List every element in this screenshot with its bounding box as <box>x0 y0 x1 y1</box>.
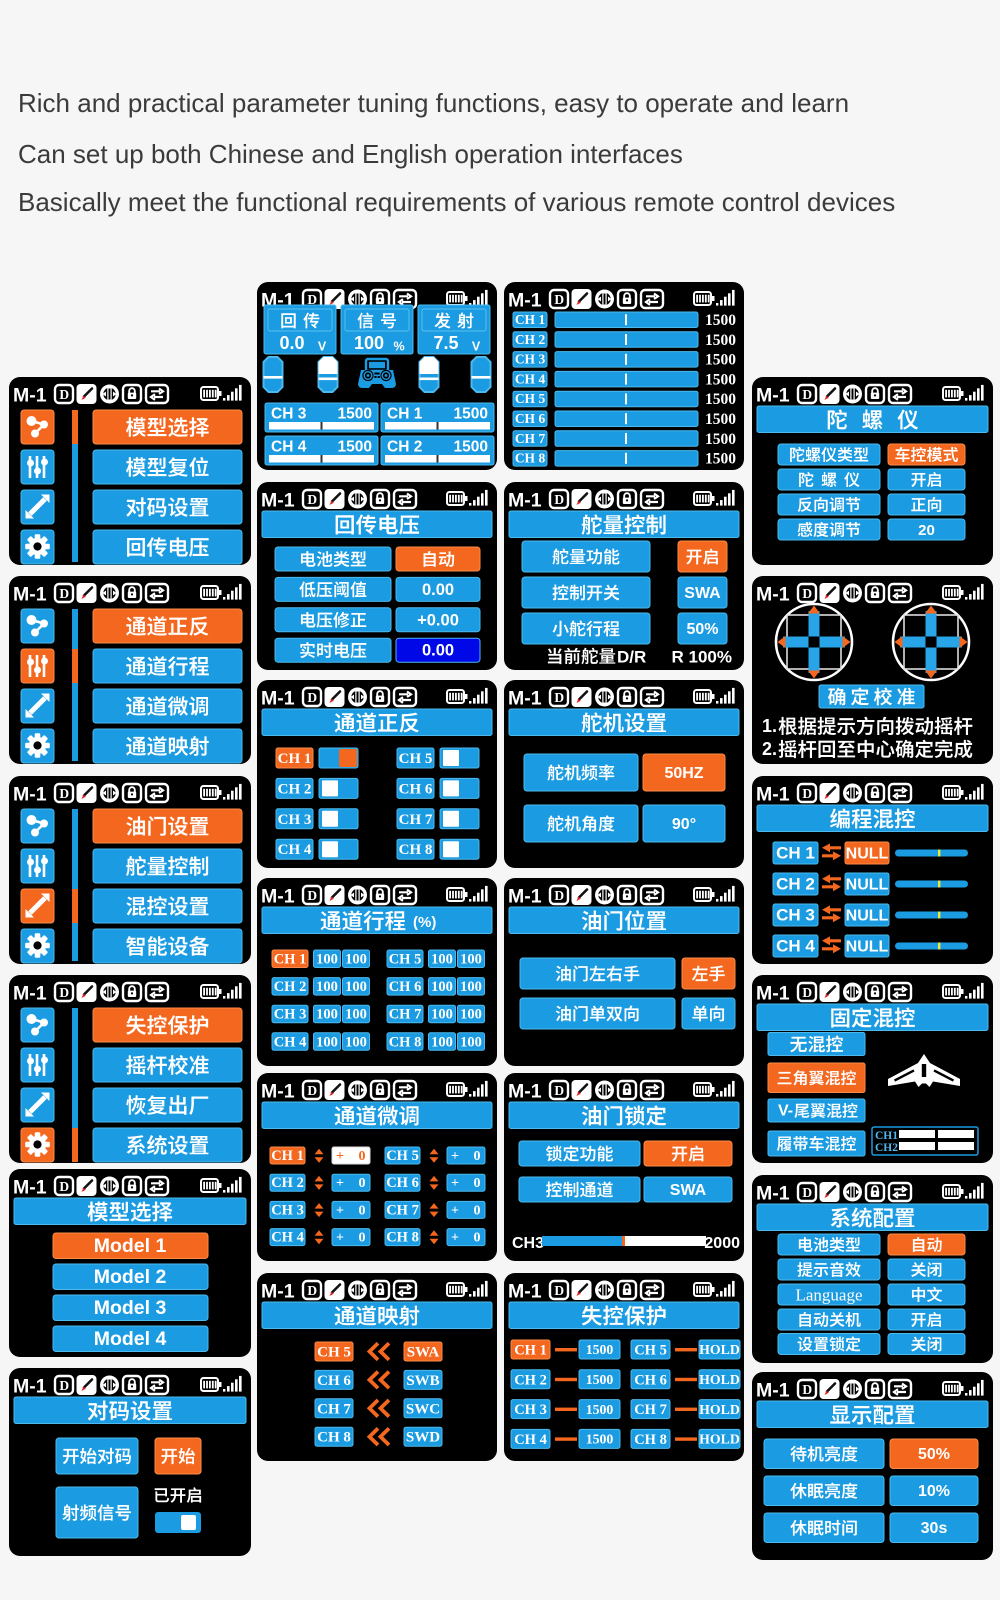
svg-text:0.00: 0.00 <box>422 581 454 599</box>
svg-text:CH 8: CH 8 <box>634 1432 667 1448</box>
svg-text:CH 6: CH 6 <box>386 1175 419 1191</box>
svg-text:CH 4: CH 4 <box>274 1034 307 1050</box>
svg-text:+: + <box>336 1176 344 1191</box>
svg-text:NULL: NULL <box>846 939 889 956</box>
svg-text:CH 6: CH 6 <box>317 1373 351 1389</box>
svg-text:100: 100 <box>460 1034 482 1050</box>
svg-text:+0.00: +0.00 <box>417 611 459 629</box>
svg-text:SWA: SWA <box>684 585 721 602</box>
svg-text:1500: 1500 <box>586 1432 614 1447</box>
svg-text:1500: 1500 <box>705 431 736 448</box>
svg-text:Model 2: Model 2 <box>94 1266 167 1288</box>
svg-text:100: 100 <box>316 979 338 995</box>
svg-text:V: V <box>318 340 327 354</box>
svg-text:CH 3: CH 3 <box>271 1202 304 1218</box>
svg-text:CH 6: CH 6 <box>634 1372 667 1388</box>
svg-text:100: 100 <box>460 979 482 995</box>
svg-text:CH 1: CH 1 <box>274 952 307 968</box>
svg-text:1.: 1. <box>762 716 777 736</box>
svg-text:CH 1: CH 1 <box>776 844 815 863</box>
svg-text:NULL: NULL <box>846 908 889 925</box>
svg-text:100: 100 <box>431 1034 453 1050</box>
svg-text:CH 2: CH 2 <box>271 1175 304 1191</box>
svg-text:CH 4: CH 4 <box>271 439 307 456</box>
svg-text:(%): (%) <box>413 914 436 931</box>
svg-text:50HZ: 50HZ <box>664 765 703 782</box>
svg-text:CH 7: CH 7 <box>515 431 546 446</box>
svg-text:CH 1: CH 1 <box>514 1343 547 1359</box>
svg-text:CH 5: CH 5 <box>317 1345 351 1361</box>
svg-text:CH 4: CH 4 <box>514 1432 547 1448</box>
svg-text:CH2: CH2 <box>875 1142 898 1154</box>
svg-text:100: 100 <box>460 1007 482 1023</box>
svg-text:100: 100 <box>345 979 367 995</box>
svg-text:0: 0 <box>359 1149 366 1164</box>
svg-text:Language: Language <box>795 1286 862 1305</box>
svg-text:+: + <box>451 1231 459 1246</box>
svg-text:R 100%: R 100% <box>672 648 732 667</box>
svg-text:CH 3: CH 3 <box>278 812 312 828</box>
svg-text:100: 100 <box>431 1007 453 1023</box>
svg-text:Model 3: Model 3 <box>94 1297 167 1319</box>
svg-text:0: 0 <box>359 1176 366 1191</box>
svg-text:100: 100 <box>316 1007 338 1023</box>
svg-text:CH 4: CH 4 <box>776 937 815 956</box>
svg-text:CH1: CH1 <box>875 1130 898 1142</box>
svg-text:100: 100 <box>354 333 384 353</box>
svg-text:CH 2: CH 2 <box>274 979 307 995</box>
svg-text:CH 5: CH 5 <box>634 1343 667 1359</box>
svg-text:V-: V- <box>778 1103 793 1120</box>
svg-text:CH 5: CH 5 <box>389 952 422 968</box>
svg-text:Model 4: Model 4 <box>94 1328 167 1350</box>
svg-text:2000: 2000 <box>704 1235 740 1252</box>
svg-text:100: 100 <box>431 979 453 995</box>
svg-text:+: + <box>336 1231 344 1246</box>
svg-text:0: 0 <box>474 1203 481 1218</box>
svg-text:SWB: SWB <box>406 1373 439 1389</box>
svg-text:7.5: 7.5 <box>433 333 458 353</box>
svg-text:30s: 30s <box>921 1520 948 1537</box>
svg-text:CH 3: CH 3 <box>271 406 307 423</box>
svg-text:CH 4: CH 4 <box>271 1230 304 1246</box>
svg-text:1500: 1500 <box>705 371 736 388</box>
svg-text:SWD: SWD <box>406 1430 440 1446</box>
svg-text:HOLD: HOLD <box>699 1402 740 1417</box>
svg-text:10%: 10% <box>918 1483 950 1500</box>
svg-text:CH 1: CH 1 <box>278 751 312 767</box>
svg-text:0.00: 0.00 <box>422 642 454 660</box>
svg-text:1500: 1500 <box>586 1402 614 1417</box>
svg-text:+: + <box>451 1149 459 1164</box>
svg-text:CH 7: CH 7 <box>399 812 433 828</box>
svg-text:100: 100 <box>431 952 453 968</box>
svg-text:%: % <box>393 340 404 354</box>
svg-text:1500: 1500 <box>705 312 736 329</box>
svg-text:2.: 2. <box>762 739 777 759</box>
svg-text:100: 100 <box>316 952 338 968</box>
svg-text:CH 8: CH 8 <box>317 1430 351 1446</box>
svg-text:0: 0 <box>474 1176 481 1191</box>
svg-text:0: 0 <box>359 1231 366 1246</box>
svg-text:1500: 1500 <box>586 1342 614 1357</box>
svg-text:CH 5: CH 5 <box>399 751 433 767</box>
svg-text:CH 8: CH 8 <box>399 842 433 858</box>
svg-text:CH 3: CH 3 <box>515 352 546 367</box>
svg-text:CH 2: CH 2 <box>514 1372 547 1388</box>
svg-text:1500: 1500 <box>454 439 488 456</box>
svg-text:1500: 1500 <box>338 439 372 456</box>
svg-text:D/R: D/R <box>617 648 646 667</box>
svg-text:NULL: NULL <box>846 877 889 894</box>
svg-text:SWA: SWA <box>407 1345 440 1361</box>
svg-text:SWA: SWA <box>670 1182 707 1199</box>
svg-text:CH 4: CH 4 <box>515 371 546 386</box>
svg-text:0.0: 0.0 <box>279 333 304 353</box>
svg-text:0: 0 <box>359 1203 366 1218</box>
svg-text:Can set up both Chinese and En: Can set up both Chinese and English oper… <box>18 139 683 169</box>
svg-text:HOLD: HOLD <box>699 1372 740 1387</box>
svg-text:CH 1: CH 1 <box>271 1148 304 1164</box>
svg-text:1500: 1500 <box>338 406 372 423</box>
svg-text:CH3: CH3 <box>512 1235 544 1252</box>
svg-text:HOLD: HOLD <box>699 1432 740 1447</box>
svg-text:CH 4: CH 4 <box>278 842 312 858</box>
svg-text:CH 7: CH 7 <box>386 1202 419 1218</box>
svg-text:100: 100 <box>345 952 367 968</box>
svg-text:HOLD: HOLD <box>699 1342 740 1357</box>
svg-text:CH 2: CH 2 <box>515 332 546 347</box>
svg-text:1500: 1500 <box>705 391 736 408</box>
svg-text:+: + <box>451 1203 459 1218</box>
svg-text:Model 1: Model 1 <box>94 1235 167 1257</box>
svg-text:1500: 1500 <box>586 1372 614 1387</box>
svg-text:CH 3: CH 3 <box>776 906 815 925</box>
svg-text:CH 1: CH 1 <box>387 406 423 423</box>
svg-text:100: 100 <box>345 1034 367 1050</box>
svg-text:+: + <box>336 1149 344 1164</box>
svg-text:CH 2: CH 2 <box>776 875 815 894</box>
svg-text:NULL: NULL <box>846 846 889 863</box>
svg-text:100: 100 <box>345 1007 367 1023</box>
svg-text:CH 7: CH 7 <box>317 1401 351 1417</box>
svg-text:CH 7: CH 7 <box>634 1402 667 1418</box>
svg-text:+: + <box>336 1203 344 1218</box>
svg-text:1500: 1500 <box>705 352 736 369</box>
svg-text:SWC: SWC <box>406 1401 440 1417</box>
svg-text:CH 2: CH 2 <box>387 439 422 456</box>
svg-text:50%: 50% <box>686 621 718 638</box>
svg-text:CH 6: CH 6 <box>389 979 422 995</box>
svg-text:100: 100 <box>460 952 482 968</box>
svg-text:CH 5: CH 5 <box>386 1148 419 1164</box>
svg-text:Basically meet the functional: Basically meet the functional requiremen… <box>18 187 895 217</box>
svg-text:+: + <box>451 1176 459 1191</box>
svg-text:CH 5: CH 5 <box>515 391 546 406</box>
svg-text:CH 6: CH 6 <box>399 781 433 797</box>
svg-text:CH 3: CH 3 <box>274 1007 307 1023</box>
svg-text:Rich and practical parameter t: Rich and practical parameter tuning func… <box>18 88 849 118</box>
svg-text:100: 100 <box>316 1034 338 1050</box>
svg-text:0: 0 <box>474 1231 481 1246</box>
svg-text:CH 6: CH 6 <box>515 411 546 426</box>
svg-text:CH 3: CH 3 <box>514 1402 547 1418</box>
svg-text:CH 7: CH 7 <box>389 1007 422 1023</box>
svg-text:CH 1: CH 1 <box>515 312 546 327</box>
svg-text:20: 20 <box>918 522 935 539</box>
svg-text:CH 8: CH 8 <box>515 451 546 466</box>
svg-text:50%: 50% <box>918 1446 950 1463</box>
svg-text:V: V <box>472 340 481 354</box>
svg-text:0: 0 <box>474 1149 481 1164</box>
svg-text:1500: 1500 <box>705 411 736 428</box>
svg-text:90°: 90° <box>672 816 696 833</box>
svg-text:1500: 1500 <box>454 406 488 423</box>
svg-text:CH 2: CH 2 <box>278 781 312 797</box>
svg-text:1500: 1500 <box>705 332 736 349</box>
svg-text:1500: 1500 <box>705 451 736 468</box>
svg-text:CH 8: CH 8 <box>386 1230 419 1246</box>
svg-text:CH 8: CH 8 <box>389 1034 422 1050</box>
